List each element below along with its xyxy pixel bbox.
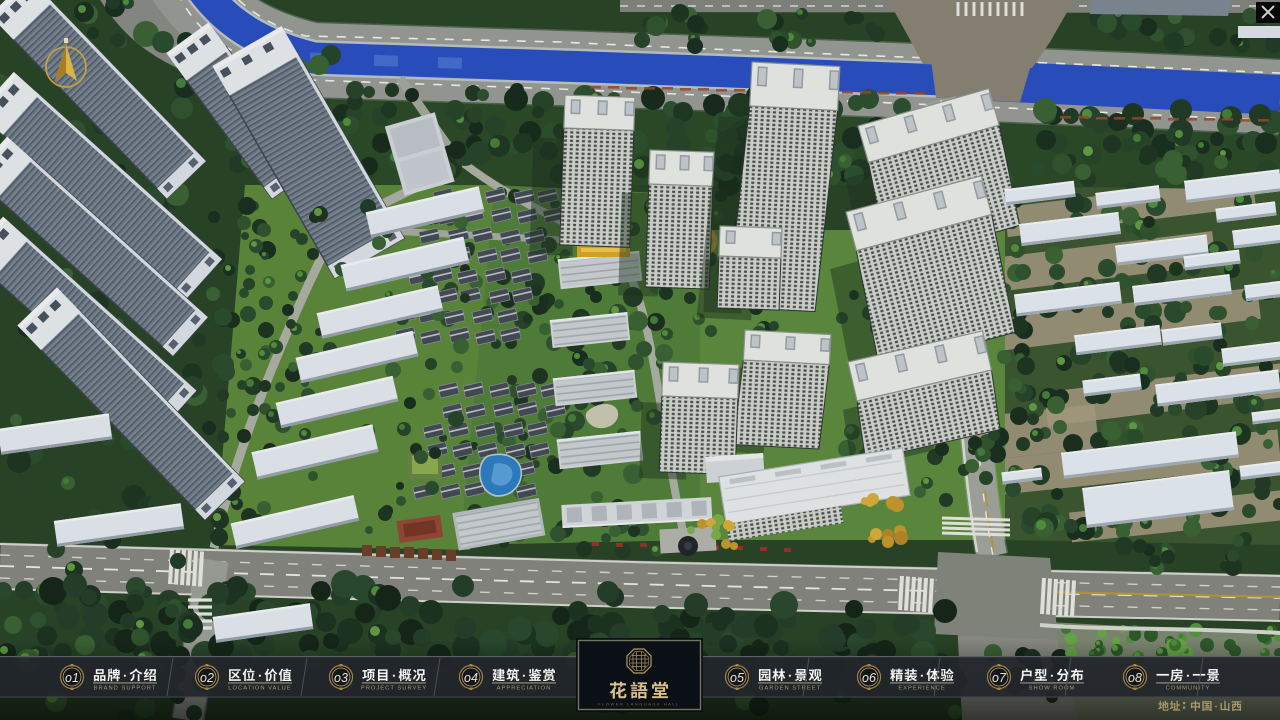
svg-text:o7: o7	[992, 671, 1007, 685]
svg-text:PROJECT SURVEY: PROJECT SURVEY	[361, 686, 427, 692]
svg-text:o1: o1	[65, 671, 79, 685]
svg-text:o4: o4	[464, 671, 478, 685]
svg-text:o5: o5	[730, 671, 744, 685]
svg-text:EXPERIENCE: EXPERIENCE	[898, 686, 945, 692]
svg-text:o2: o2	[200, 671, 214, 685]
svg-text:COMMUNITY: COMMUNITY	[1166, 686, 1211, 692]
svg-text:BRAND SUPPORT: BRAND SUPPORT	[94, 686, 157, 692]
svg-text:o8: o8	[1128, 671, 1142, 685]
svg-text:LOCATION VALUE: LOCATION VALUE	[228, 686, 291, 692]
svg-text:GARDEN STREET: GARDEN STREET	[759, 686, 821, 692]
svg-text:FLOWER LANGUAGE HALL: FLOWER LANGUAGE HALL	[598, 702, 680, 707]
svg-text:SHOW ROOM: SHOW ROOM	[1029, 686, 1076, 692]
svg-text:APPRECIATION: APPRECIATION	[497, 686, 552, 692]
svg-text:o3: o3	[334, 671, 348, 685]
svg-text:o6: o6	[862, 671, 876, 685]
